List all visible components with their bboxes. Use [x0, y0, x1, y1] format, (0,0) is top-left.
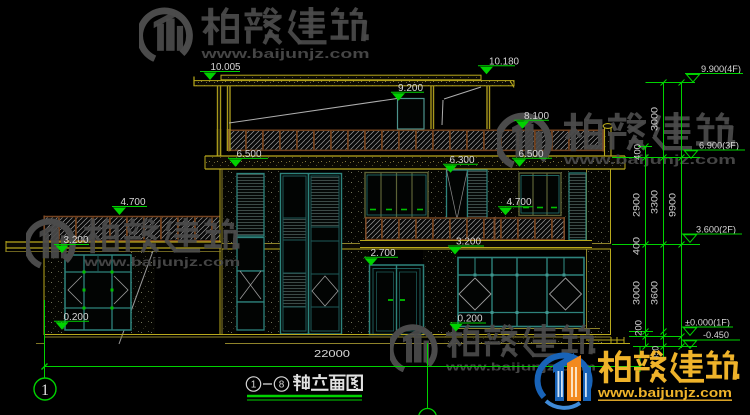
svg-text:3000: 3000: [632, 281, 642, 305]
svg-text:www.baijunjz.com: www.baijunjz.com: [562, 152, 736, 167]
svg-text:8: 8: [279, 380, 285, 391]
svg-text:1: 1: [41, 382, 49, 399]
svg-text:-0.450: -0.450: [703, 330, 729, 341]
svg-text:2900: 2900: [632, 193, 642, 217]
svg-text:www.baijunjz.com: www.baijunjz.com: [200, 46, 369, 61]
svg-text:400: 400: [633, 144, 643, 160]
svg-text:400: 400: [632, 237, 642, 255]
svg-text:www.baijunjz.com: www.baijunjz.com: [83, 255, 241, 269]
svg-text:9900: 9900: [668, 193, 678, 217]
svg-text:200: 200: [634, 320, 644, 336]
svg-text:3000: 3000: [650, 107, 660, 131]
svg-text:22000: 22000: [314, 349, 351, 360]
svg-text:3600: 3600: [650, 281, 660, 305]
svg-text:3300: 3300: [650, 190, 660, 214]
svg-text:1: 1: [251, 380, 257, 391]
svg-text:www.baijunjz.com: www.baijunjz.com: [597, 385, 732, 400]
